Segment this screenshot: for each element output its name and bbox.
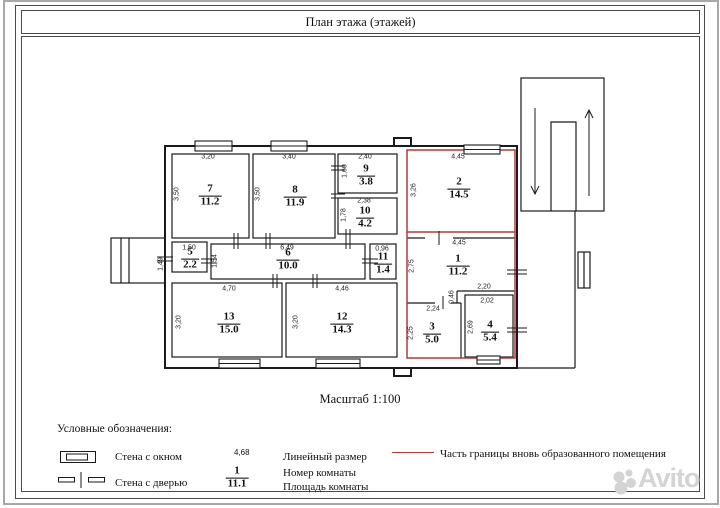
room-label-9: 93.8 — [357, 164, 375, 189]
avito-watermark: Avito — [610, 466, 710, 496]
room-label-7: 711.2 — [199, 184, 222, 209]
avito-logo-icon — [610, 466, 636, 496]
room-label-4: 45.4 — [481, 320, 499, 345]
dim-room8-width: 3,40 — [282, 154, 296, 161]
dim-room6-width: 6,49 — [280, 245, 294, 252]
dim-room1-height: 2,75 — [409, 259, 416, 273]
dim-room5-height: 1,49 — [158, 257, 165, 271]
wall-with-door-symbol — [58, 471, 106, 489]
dim-room4-width: 2,02 — [480, 298, 494, 305]
legend-wall-window-label: Стена с окном — [115, 451, 182, 463]
dim-room12-height: 3,20 — [293, 315, 300, 329]
dim-room5-width: 1,50 — [182, 245, 196, 252]
dim-room8-height: 3,50 — [255, 187, 262, 201]
right-annex — [517, 211, 590, 368]
dim-room1-width: 4,45 — [452, 240, 466, 247]
dim-room10-width: 2,38 — [357, 198, 371, 205]
scale-label: Масштаб 1:100 — [310, 392, 410, 407]
stair-up-arrow-icon — [585, 110, 593, 196]
legend-wall-door-label: Стена с дверью — [115, 477, 187, 489]
dim-room2-height: 3,26 — [411, 183, 418, 197]
room-label-11: 111.4 — [374, 252, 392, 277]
avito-watermark-text: Avito — [638, 463, 700, 494]
room-label-1: 111.2 — [447, 254, 470, 279]
legend-room-area-label: Площадь комнаты — [283, 481, 368, 493]
dim-room2-width: 4,45 — [451, 154, 465, 161]
scanned-floor-plan-page: { "page": { "title": "План этажа (этажей… — [0, 0, 720, 508]
dim-rooms34-jog: 0,46 — [449, 290, 456, 304]
dim-room13-width: 4,70 — [222, 286, 236, 293]
room-label-12: 1214.3 — [330, 312, 353, 337]
dim-room12-width: 4,46 — [335, 286, 349, 293]
dim-room11-width: 0,96 — [375, 246, 389, 253]
legend-linear-size-label: Линейный размер — [283, 451, 367, 463]
room-label-3: 35.0 — [423, 322, 441, 347]
legend-red-boundary-line — [392, 452, 434, 453]
dim-room9-height: 1,60 — [342, 164, 349, 178]
stair-down-arrow-icon — [531, 108, 539, 194]
legend-room-number-label: Номер комнаты — [283, 467, 356, 479]
dim-room13-height: 3,20 — [176, 315, 183, 329]
room-label-10: 104.2 — [356, 206, 374, 231]
dim-room10-height: 1,78 — [341, 208, 348, 222]
dim-room3-width: 2,24 — [426, 306, 440, 313]
legend-linear-size-example: 4,68 — [234, 448, 250, 457]
legend-red-boundary-label: Часть границы вновь образованного помеще… — [440, 448, 666, 460]
dim-room4-outer-width: 2,20 — [477, 284, 491, 291]
dim-room7-width: 3,20 — [201, 154, 215, 161]
room-label-2: 214.5 — [447, 177, 470, 202]
dim-room3-height: 2,25 — [408, 326, 415, 340]
room-label-8: 811.9 — [284, 185, 307, 210]
legend-room-fraction: 1 11.1 — [226, 466, 249, 491]
dim-room7-height: 3,50 — [174, 187, 181, 201]
legend-heading: Условные обозначения: — [57, 423, 172, 435]
room-label-13: 1315.0 — [217, 312, 240, 337]
wall-with-window-symbol — [60, 451, 96, 463]
dim-room6-height: 1,54 — [212, 254, 219, 268]
dim-room4-height: 2,69 — [468, 320, 475, 334]
dim-room9-width: 2,40 — [358, 154, 372, 161]
